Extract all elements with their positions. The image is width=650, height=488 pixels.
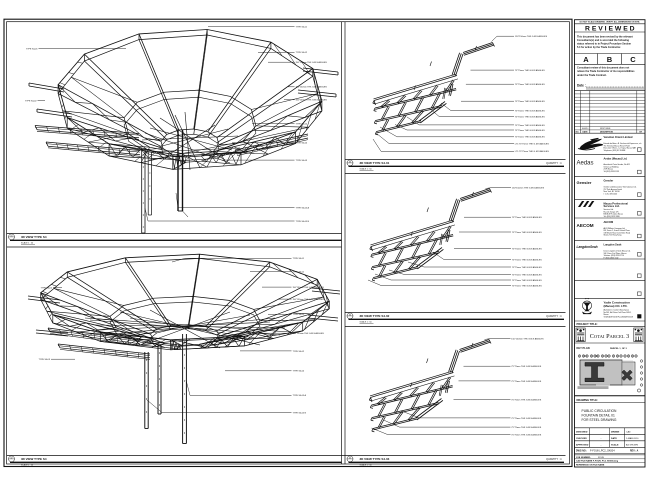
svg-text:3D VIEW TYPE S4-03: 3D VIEW TYPE S4-03 [360,457,390,461]
svg-text:04: 04 [349,314,351,316]
svg-text:FIRST ISSUE: FIRST ISSUE [600,128,611,130]
svg-text:F: (853) 2833 1532: F: (853) 2833 1532 [604,257,619,259]
svg-text:01: 01 [10,235,12,237]
svg-text:03: 03 [349,161,351,163]
svg-text:TYPE S4-05 A: TYPE S4-05 A [293,394,307,397]
svg-text:TYPE S4-04: TYPE S4-04 [296,143,308,145]
svg-text:CAD: CAD [626,430,631,433]
svg-text:TYPE S4-01: TYPE S4-01 [293,258,305,260]
svg-text:F-FOUN_PC2_SK004: F-FOUN_PC2_SK004 [590,450,615,453]
svg-text:TYPE S4-05 B: TYPE S4-05 B [293,413,307,415]
svg-text:75*75mm THK G.M.S ANGLES: 75*75mm THK G.M.S ANGLES [511,426,541,429]
svg-text:DESIGNED: DESIGNED [576,431,588,433]
svg-text:TYPE S4-03: TYPE S4-03 [38,359,50,361]
svg-text:Aedas (Macau) Ltd.: Aedas (Macau) Ltd. [604,156,628,160]
svg-text:CAD FILE NAME F-FOUN_PC2_SK0: CAD FILE NAME F-FOUN_PC2_SK004.dwg [576,460,619,463]
svg-text:APPROVED: APPROVED [576,443,589,446]
svg-text:t: 1 212.492.1400: t: 1 212.492.1400 [604,192,618,195]
svg-text:5.4 for action by the Trade Co: 5.4 for action by the Trade Contractor. [577,46,621,49]
svg-text:150*150mm THK G.M.S ANGLES: 150*150mm THK G.M.S ANGLES [296,86,328,89]
svg-text:75*75mm THK G.M.S ANGLES: 75*75mm THK G.M.S ANGLES [511,417,541,420]
svg-text:TYPE S4-02: TYPE S4-02 [296,52,308,54]
svg-text:KEY PLAN: KEY PLAN [577,346,590,350]
svg-text:JOB NUMBER :: JOB NUMBER : [576,457,592,459]
svg-text:75*75mm THK G.M.S ANGLES: 75*75mm THK G.M.S ANGLES [515,115,545,118]
svg-text:75*75mm THK G.M.S ANGLES: 75*75mm THK G.M.S ANGLES [512,248,542,251]
svg-text:75*75mm THK G.M.S ANGLES: 75*75mm THK G.M.S ANGLES [515,100,545,103]
svg-text:L75 75*75mm THK G.M.S ANGLES: L75 75*75mm THK G.M.S ANGLES [515,142,550,145]
svg-text:75*75mm THK G.M.S ANGLES: 75*75mm THK G.M.S ANGLES [512,266,542,269]
svg-text:TYPE S4-03: TYPE S4-03 [296,160,308,162]
svg-text:A: A [583,55,589,64]
svg-text:75*75mm THK G.M.S ANGLES: 75*75mm THK G.M.S ANGLES [515,136,545,139]
svg-text:QUANTITY : 4: QUANTITY : 4 [546,162,562,165]
svg-text:TYPE S4-05 B: TYPE S4-05 B [296,221,310,223]
svg-text:150*150mm THK G.M.S ANGLES: 150*150mm THK G.M.S ANGLES [511,337,544,340]
svg-text:3152E: 3152E [598,457,605,459]
svg-text:DATE: DATE [582,130,588,133]
svg-text:QUANTITY : 4: QUANTITY : 4 [546,315,562,318]
svg-text:75*75mm THK G.M.S ANGLES: 75*75mm THK G.M.S ANGLES [512,279,542,282]
svg-text:150*150mm THK G.M.S ANGLES: 150*150mm THK G.M.S ANGLES [512,187,545,190]
svg-text:L75 75*75mm THK G.M.S ANGLES: L75 75*75mm THK G.M.S ANGLES [515,150,550,153]
svg-text:B: B [607,55,613,64]
svg-text:75*75mm THK G.M.S ANGLES: 75*75mm THK G.M.S ANGLES [515,110,545,113]
svg-text:SCALE: SCALE [611,443,619,446]
svg-text:relieve the Trade Contractor o: relieve the Trade Contractor of its resp… [577,70,635,73]
svg-text:DRAWN: DRAWN [611,430,620,433]
svg-text:02: 02 [10,457,12,459]
svg-text:DWG NO :: DWG NO : [576,451,587,453]
svg-text:PROJECT TITLE:: PROJECT TITLE: [577,322,598,326]
svg-text:75*75mm THK G.M.S ANGLES: 75*75mm THK G.M.S ANGLES [511,433,541,436]
svg-text:Tel (853) 2833 1133: Tel (853) 2833 1133 [604,171,619,173]
svg-text:TYPE S4-02: TYPE S4-02 [40,288,52,290]
svg-text:TYPE S4-05 A: TYPE S4-05 A [296,206,310,209]
svg-text:3D VIEW TYPE S4: 3D VIEW TYPE S4 [21,457,47,461]
svg-text:REV : A: REV : A [630,450,639,453]
svg-text:TYPE S4-02: TYPE S4-02 [293,314,305,316]
svg-text:DO NOT SCALE DRAWING. VERIFY A: DO NOT SCALE DRAWING. VERIFY ALL DIMENSI… [580,21,641,24]
svg-text:150*150mm THK G.M.S ANGLES: 150*150mm THK G.M.S ANGLES [515,35,548,38]
svg-text:150*150mm THK G.M.S ANGLES: 150*150mm THK G.M.S ANGLES [296,61,328,64]
svg-text:75*75mm THK G.M.S ANGLES: 75*75mm THK G.M.S ANGLES [512,216,542,219]
svg-text:Consultants(s) and is accorded: Consultants(s) and is accorded the follo… [577,39,630,42]
svg-text:Gensler: Gensler [604,179,614,183]
svg-text:Date :: Date : [577,83,586,87]
svg-text:150*150mm THK G.M.S ANGLES: 150*150mm THK G.M.S ANGLES [296,99,328,102]
svg-text:QUANTITY : 4: QUANTITY : 4 [546,458,562,461]
svg-text:75*75mm THK G.M.S ANGLES: 75*75mm THK G.M.S ANGLES [515,83,545,86]
svg-text:75*75mm THK G.M.S ANGLES: 75*75mm THK G.M.S ANGLES [511,380,541,383]
svg-text:TYPE S4-04: TYPE S4-04 [293,371,305,373]
svg-text:05: 05 [349,457,351,459]
svg-text:CHECKED: CHECKED [576,438,587,440]
svg-text:DATE: DATE [611,437,617,440]
svg-text:75*75mm THK G.M.S ANGLES: 75*75mm THK G.M.S ANGLES [511,398,541,401]
svg-text:REFERENCE ON FILE NAME: REFERENCE ON FILE NAME [576,464,605,467]
svg-text:LangdonSeah: LangdonSeah [577,245,598,249]
svg-text:75*75mm THK G.M.S ANGLES: 75*75mm THK G.M.S ANGLES [515,69,545,72]
svg-text:TYPE S4-02: TYPE S4-02 [293,351,305,353]
svg-text:Gensler: Gensler [577,180,592,185]
svg-text:Aedas: Aedas [577,161,594,167]
svg-text:AECOM: AECOM [577,223,594,228]
svg-text:COTAI PARCEL 3: COTAI PARCEL 3 [590,333,629,340]
svg-text:Services Ltd.: Services Ltd. [604,204,620,208]
svg-text:DRAWING TITLE:: DRAWING TITLE: [577,398,598,402]
svg-text:Venetian Orient Limited: Venetian Orient Limited [604,135,633,139]
svg-text:75*75mm THK G.M.S ANGLES: 75*75mm THK G.M.S ANGLES [512,259,542,262]
svg-text:1-MAR-2010: 1-MAR-2010 [626,437,639,440]
svg-text:3D VIEW TYPE S4-01: 3D VIEW TYPE S4-01 [360,161,390,165]
svg-text:TYPE S4-01: TYPE S4-01 [293,271,305,273]
svg-text:150*150mm THK G.M.S ANGLES: 150*150mm THK G.M.S ANGLES [293,298,325,301]
svg-text:PUBLIC CIRCULATION: PUBLIC CIRCULATION [582,409,618,413]
svg-text:75*75mm THK G.M.S ANGLES: 75*75mm THK G.M.S ANGLES [515,124,545,127]
svg-text:75*75mm THK G.M.S ANGLES: 75*75mm THK G.M.S ANGLES [512,284,542,287]
svg-text:10/03/10: 10/03/10 [582,128,589,130]
svg-text:FOR STEEL DRAWING: FOR STEEL DRAWING [582,418,617,422]
svg-text:Telephone: (853) 81 118888: Telephone: (853) 81 118888 [604,150,626,152]
svg-text:TYPE S4-02: TYPE S4-02 [296,123,308,125]
svg-text:under the Trade Contract.: under the Trade Contract. [577,74,607,77]
svg-text:75*75mm THK G.M.S ANGLES: 75*75mm THK G.M.S ANGLES [515,129,545,132]
svg-text:PARCEL 1, OF 3: PARCEL 1, OF 3 [610,347,627,350]
svg-text:150*150mm THK G.M.S ANGLES: 150*150mm THK G.M.S ANGLES [293,286,325,289]
svg-text:Langdon Seah: Langdon Seah [604,243,622,247]
svg-text:75*75mm THK G.M.S ANGLES: 75*75mm THK G.M.S ANGLES [512,273,542,276]
svg-text:3D VIEW TYPE S4-02: 3D VIEW TYPE S4-02 [360,314,390,318]
svg-text:TYPE S4-02: TYPE S4-02 [25,100,37,102]
svg-text:AS SHOWN: AS SHOWN [626,443,638,446]
svg-text:TYPE S4-01: TYPE S4-01 [296,26,308,28]
svg-text:Shatin, NT, Hong Kong: Shatin, NT, Hong Kong [604,234,622,237]
svg-text:Tel: (853) 2878 3396: Tel: (853) 2878 3396 [604,216,620,218]
svg-text:TYPE S4-01: TYPE S4-01 [26,48,38,50]
svg-text:75*75mm THK G.M.S ANGLES: 75*75mm THK G.M.S ANGLES [511,365,541,368]
svg-text:Tel:(853)28755218 Fax:(853)28: Tel:(853)28755218 Fax:(853)28755228 [604,317,633,319]
svg-text:75*75mm THK G.M.S ANGLES: 75*75mm THK G.M.S ANGLES [512,231,542,234]
svg-text:AECOM: AECOM [604,220,614,224]
svg-text:R E V I E W E D: R E V I E W E D [585,25,635,32]
svg-text:150*150mm THK G.M.S ANGLES: 150*150mm THK G.M.S ANGLES [293,332,325,335]
svg-text:3D VIEW TYPE S4: 3D VIEW TYPE S4 [21,235,47,239]
svg-text:FOUNTAIN DETAIL 01: FOUNTAIN DETAIL 01 [582,413,615,417]
svg-text:C: C [630,55,636,64]
svg-text:(Macau) CO. LTD.: (Macau) CO. LTD. [604,304,628,308]
